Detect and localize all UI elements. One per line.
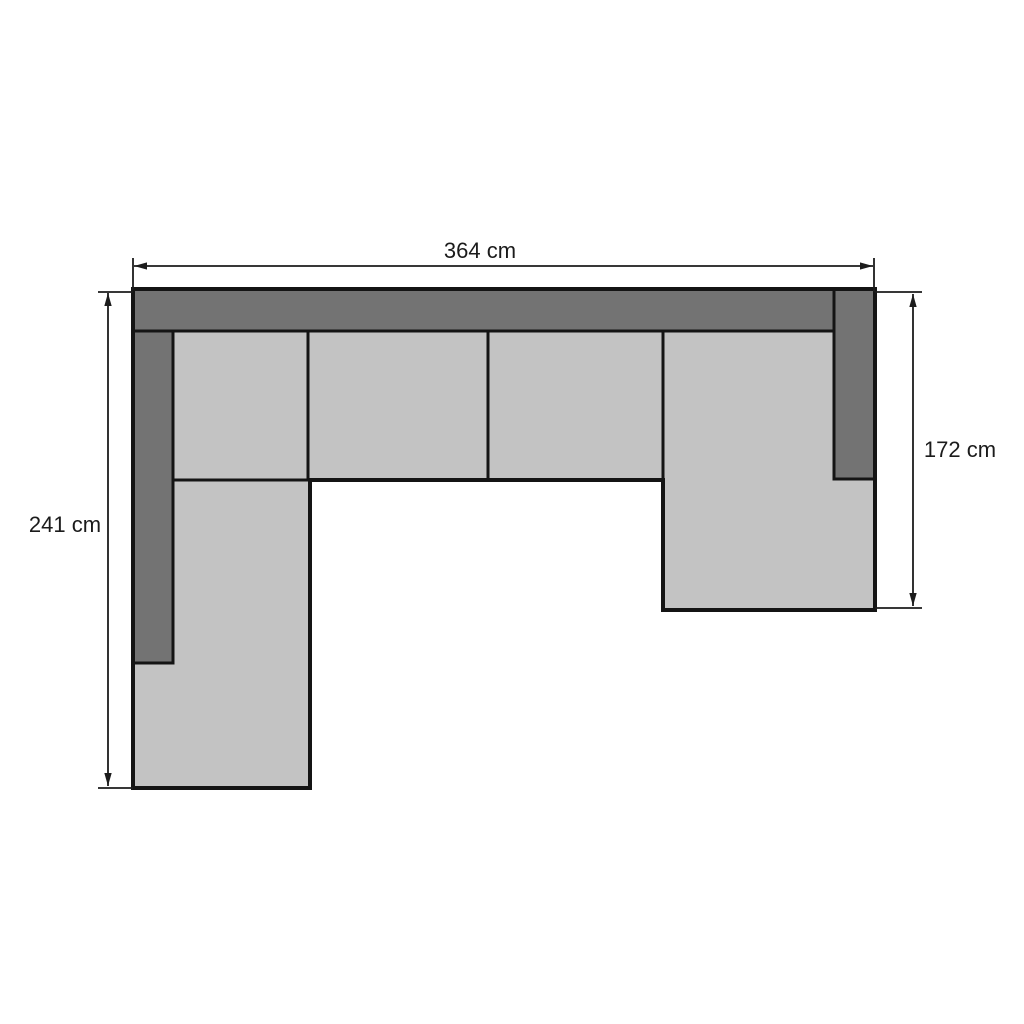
backrest-top [133,289,834,331]
armrest-right [834,289,875,479]
armrest-left [133,331,173,663]
diagram-canvas: 364 cm 241 cm 172 cm [0,0,1024,1024]
seat-cushion-1 [173,331,308,480]
seat-cushion-3 [488,331,663,480]
sofa-dimension-diagram: 364 cm 241 cm 172 cm [0,0,1024,1024]
height-left-dimension-label: 241 cm [29,512,101,537]
seat-cushion-2 [308,331,488,480]
width-dimension-label: 364 cm [444,238,516,263]
height-right-dimension-label: 172 cm [924,437,996,462]
